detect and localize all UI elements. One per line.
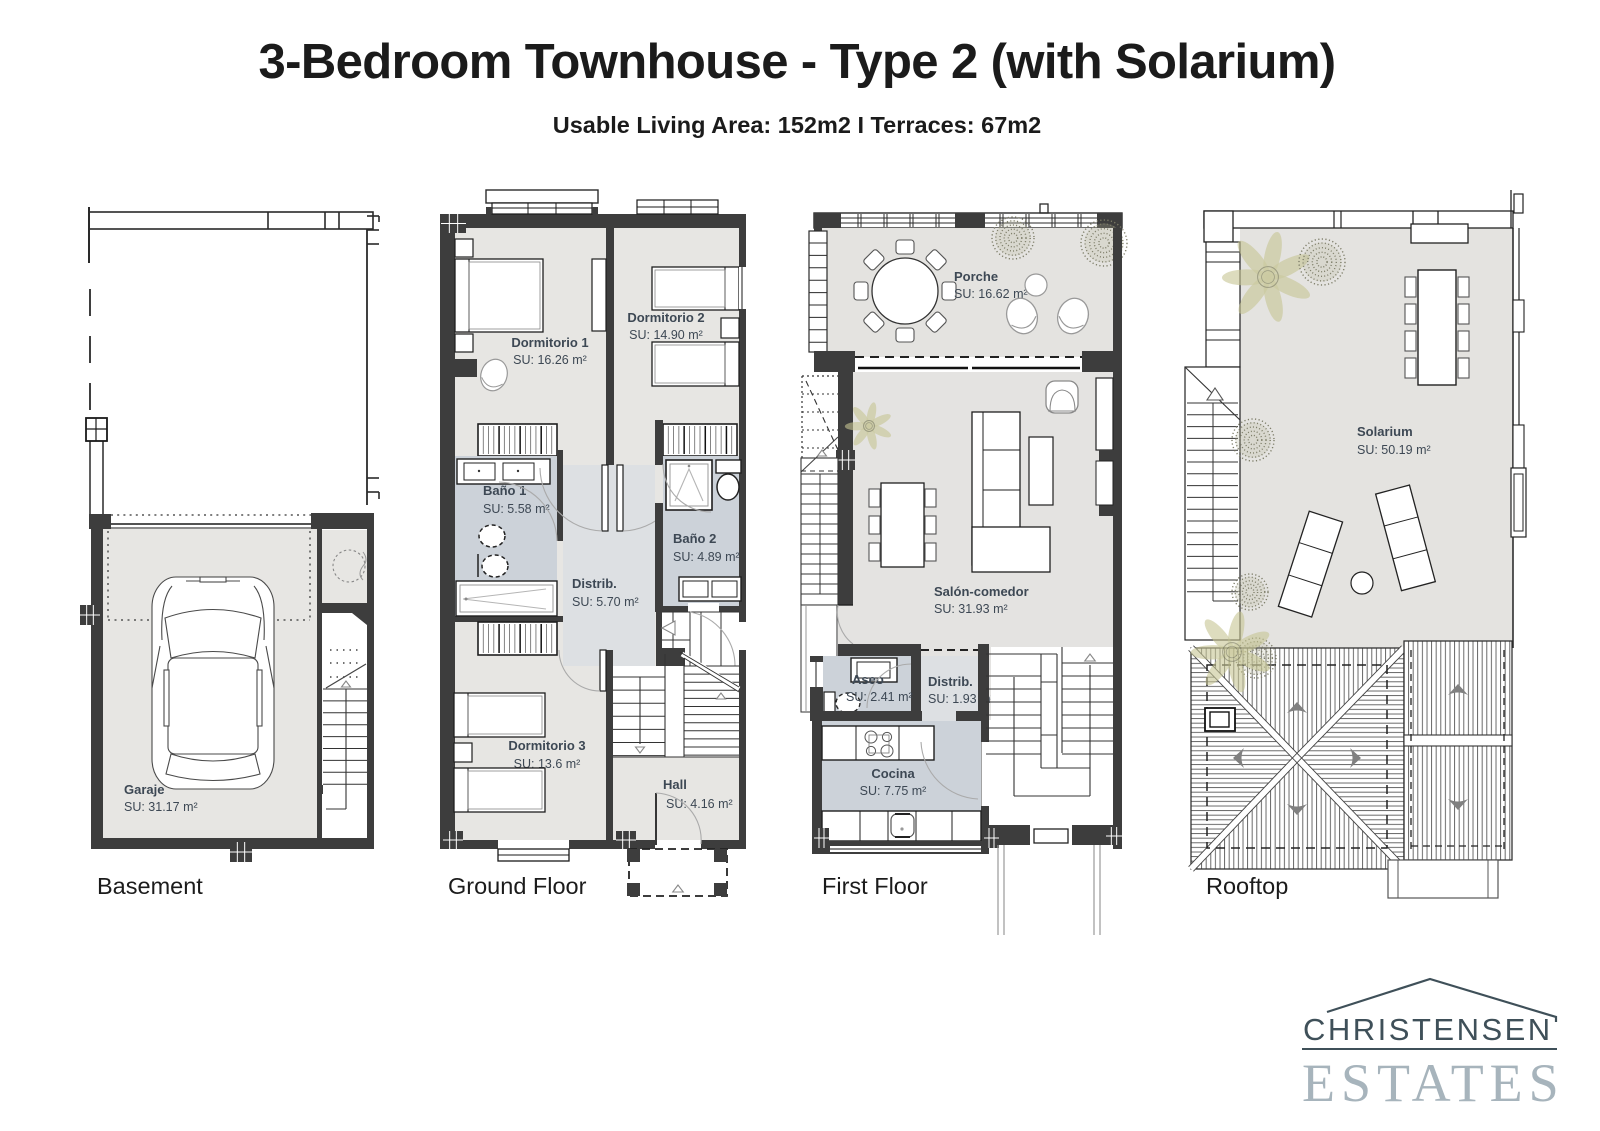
svg-text:Dormitorio 2: Dormitorio 2	[627, 310, 704, 325]
svg-text:Dormitorio 3: Dormitorio 3	[508, 738, 585, 753]
svg-text:Basement: Basement	[97, 873, 203, 899]
svg-text:SU: 31.93 m²: SU: 31.93 m²	[934, 602, 1008, 616]
svg-text:Garaje: Garaje	[124, 782, 164, 797]
svg-text:SU: 5.70 m²: SU: 5.70 m²	[572, 595, 639, 609]
svg-text:SU: 16.26 m²: SU: 16.26 m²	[513, 353, 587, 367]
svg-text:ESTATES: ESTATES	[1302, 1053, 1565, 1113]
svg-text:Rooftop: Rooftop	[1206, 873, 1288, 899]
svg-text:Hall: Hall	[663, 777, 687, 792]
svg-text:SU: 4.16 m²: SU: 4.16 m²	[666, 797, 733, 811]
svg-text:SU: 7.75 m²: SU: 7.75 m²	[860, 784, 927, 798]
svg-text:CHRISTENSEN: CHRISTENSEN	[1303, 1012, 1553, 1047]
svg-text:SU: 14.90 m²: SU: 14.90 m²	[629, 328, 703, 342]
svg-text:Solarium: Solarium	[1357, 424, 1413, 439]
svg-text:SU: 4.89 m²: SU: 4.89 m²	[673, 550, 740, 564]
svg-text:Baño 1: Baño 1	[483, 483, 526, 498]
svg-text:Porche: Porche	[954, 269, 998, 284]
svg-text:First Floor: First Floor	[822, 873, 928, 899]
svg-text:Ground Floor: Ground Floor	[448, 873, 587, 899]
svg-text:SU: 50.19 m²: SU: 50.19 m²	[1357, 443, 1431, 457]
svg-text:SU: 31.17 m²: SU: 31.17 m²	[124, 800, 198, 814]
svg-text:Baño 2: Baño 2	[673, 531, 716, 546]
svg-text:Cocina: Cocina	[871, 766, 915, 781]
svg-text:SU: 2.41 m²: SU: 2.41 m²	[846, 690, 913, 704]
svg-text:3-Bedroom Townhouse - Type 2 (: 3-Bedroom Townhouse - Type 2 (with Solar…	[258, 35, 1335, 89]
svg-text:Aseo: Aseo	[852, 672, 884, 687]
svg-text:SU: 5.58 m²: SU: 5.58 m²	[483, 502, 550, 516]
svg-text:Dormitorio 1: Dormitorio 1	[511, 335, 588, 350]
svg-text:Distrib.: Distrib.	[928, 674, 973, 689]
svg-text:Distrib.: Distrib.	[572, 576, 617, 591]
svg-text:Usable Living Area: 152m2 I Te: Usable Living Area: 152m2 I Terraces: 67…	[553, 112, 1042, 138]
svg-text:Salón-comedor: Salón-comedor	[934, 584, 1029, 599]
